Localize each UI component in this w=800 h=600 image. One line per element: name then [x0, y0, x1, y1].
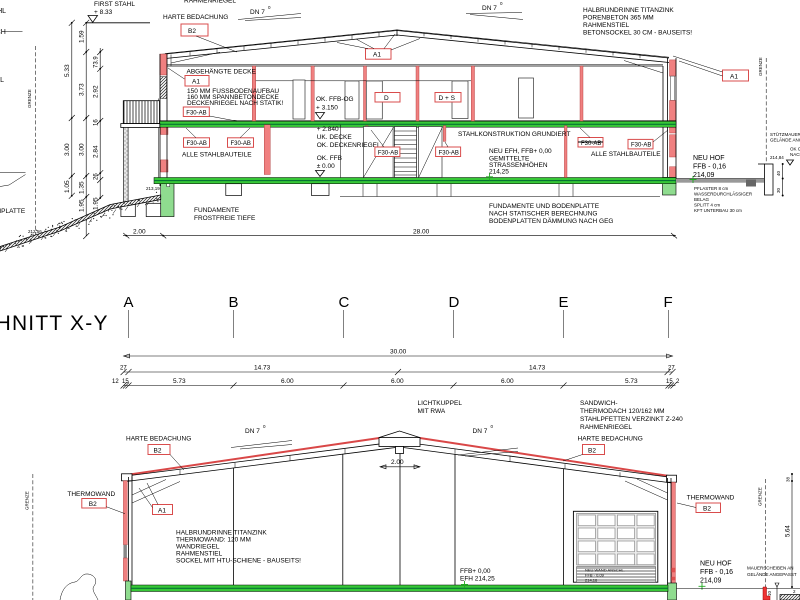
- svg-text:OK. FFB: OK. FFB: [317, 155, 342, 162]
- svg-text:DN 7: DN 7: [482, 5, 497, 12]
- svg-text:RAHMENRIEGEL: RAHMENRIEGEL: [184, 0, 236, 5]
- svg-text:B: B: [229, 294, 239, 311]
- svg-text:213,19: 213,19: [146, 186, 160, 191]
- svg-text:BODENPLATTE: BODENPLATTE: [0, 208, 26, 215]
- svg-text:HARTE BEDACHUNG: HARTE BEDACHUNG: [578, 436, 643, 443]
- svg-text:D + S: D + S: [439, 95, 456, 102]
- svg-text:HARTE BEDACHUNG: HARTE BEDACHUNG: [126, 436, 191, 443]
- svg-text:KFT UNTERBAU 30 cm: KFT UNTERBAU 30 cm: [694, 208, 742, 213]
- svg-text:GRENZE: GRENZE: [25, 491, 30, 510]
- svg-text:NACH STATISCHER BERECHNUNG: NACH STATISCHER BERECHNUNG: [489, 211, 597, 218]
- svg-text:NACH: NACH: [790, 152, 800, 157]
- svg-text:+ 3.150: + 3.150: [316, 105, 338, 112]
- svg-text:C: C: [339, 294, 350, 311]
- svg-text:5.33: 5.33: [64, 64, 71, 77]
- svg-text:3.00: 3.00: [64, 143, 71, 156]
- svg-text:27: 27: [668, 366, 675, 372]
- svg-text:30.00: 30.00: [390, 349, 407, 356]
- svg-text:5.73: 5.73: [173, 378, 186, 385]
- svg-text:THERMOWAND: 120 MM: THERMOWAND: 120 MM: [176, 537, 251, 544]
- svg-text:GELÄNDE ANGEPASST: GELÄNDE ANGEPASST: [747, 571, 797, 577]
- svg-text:6.00: 6.00: [281, 378, 294, 385]
- svg-text:A1: A1: [158, 507, 166, 514]
- svg-text:214,84: 214,84: [770, 155, 784, 160]
- svg-text:STAHL: STAHL: [0, 8, 6, 15]
- svg-text:A: A: [124, 294, 134, 311]
- svg-text:UK. DECKE: UK. DECKE: [317, 134, 353, 141]
- svg-text:RAHMENSTIEL: RAHMENSTIEL: [583, 22, 630, 29]
- svg-text:FFB - 0,16: FFB - 0,16: [700, 569, 733, 576]
- svg-text:MIT RWA: MIT RWA: [418, 408, 446, 415]
- svg-text:SOCKEL MIT HTU-SCHIENE - BAUSE: SOCKEL MIT HTU-SCHIENE - BAUSEITS!: [176, 558, 301, 565]
- svg-text:214,16: 214,16: [585, 578, 598, 583]
- svg-text:PFLASTER 8 cm: PFLASTER 8 cm: [694, 186, 729, 191]
- svg-text:WANDRIEGEL: WANDRIEGEL: [176, 544, 220, 551]
- svg-text:2.92: 2.92: [93, 85, 100, 98]
- svg-text:ABGEHÄNGTE DECKE: ABGEHÄNGTE DECKE: [187, 68, 257, 76]
- svg-text:OK GE: OK GE: [790, 147, 800, 152]
- svg-text:F30-AB: F30-AB: [378, 150, 398, 156]
- svg-text:F30-AB: F30-AB: [231, 141, 251, 147]
- svg-text:HARTE BEDACHUNG: HARTE BEDACHUNG: [163, 14, 228, 21]
- svg-text:FFB+ 0,00: FFB+ 0,00: [460, 568, 491, 575]
- svg-text:B2: B2: [188, 28, 196, 35]
- svg-text:DACH: DACH: [0, 29, 6, 36]
- svg-text:40: 40: [776, 170, 781, 176]
- svg-text:FIRST STAHL: FIRST STAHL: [94, 1, 135, 8]
- svg-text:38: 38: [786, 476, 791, 482]
- svg-text:NEU HOF: NEU HOF: [700, 561, 732, 568]
- svg-text:10: 10: [767, 590, 772, 596]
- svg-text:LICHTKUPPEL: LICHTKUPPEL: [418, 400, 463, 407]
- svg-text:DECKENRIEGEL NACH STATIK!: DECKENRIEGEL NACH STATIK!: [187, 100, 284, 107]
- svg-text:F: F: [664, 294, 673, 311]
- svg-text:30: 30: [776, 187, 781, 193]
- svg-text:5.73: 5.73: [625, 378, 638, 385]
- svg-text:3.00: 3.00: [79, 143, 86, 156]
- svg-text:26: 26: [94, 173, 100, 180]
- svg-text:A1: A1: [373, 52, 381, 59]
- svg-text:HALBRUNDRINNE TITANZINK: HALBRUNDRINNE TITANZINK: [176, 530, 267, 537]
- svg-text:DN 7: DN 7: [245, 428, 260, 435]
- svg-text:FUNDAMENTE: FUNDAMENTE: [194, 207, 240, 214]
- svg-text:2.00: 2.00: [391, 459, 404, 466]
- svg-text:RAHMENRIEGEL: RAHMENRIEGEL: [580, 424, 632, 431]
- svg-text:1.05: 1.05: [64, 180, 71, 193]
- svg-text:GRENZE: GRENZE: [27, 89, 32, 108]
- svg-text:2.00: 2.00: [133, 229, 146, 236]
- svg-text:SCHNITT X-Y: SCHNITT X-Y: [0, 312, 109, 335]
- svg-text:F30-AB: F30-AB: [186, 110, 206, 116]
- svg-text:SANDWICH-: SANDWICH-: [580, 400, 618, 407]
- svg-text:GRENZE: GRENZE: [758, 57, 763, 76]
- svg-text:BELAG: BELAG: [694, 197, 710, 202]
- svg-text:THERMOWAND: THERMOWAND: [67, 491, 115, 498]
- svg-text:15: 15: [666, 379, 673, 385]
- svg-text:F30-AB: F30-AB: [187, 141, 207, 147]
- svg-text:16: 16: [94, 119, 100, 126]
- svg-text:OK. FFB-OG: OK. FFB-OG: [316, 96, 354, 103]
- svg-text:FFB - 0,16: FFB - 0,16: [693, 164, 726, 171]
- svg-text:NEU EFH, FFB+ 0,00: NEU EFH, FFB+ 0,00: [489, 148, 552, 155]
- svg-text:214,25: 214,25: [489, 169, 509, 176]
- svg-text:GRENZE: GRENZE: [758, 487, 763, 506]
- svg-text:1.59: 1.59: [79, 30, 86, 43]
- svg-text:B2: B2: [703, 506, 711, 513]
- svg-text:3.73: 3.73: [79, 83, 86, 96]
- svg-text:A1: A1: [730, 74, 738, 81]
- svg-text:+ 2.840: + 2.840: [317, 126, 339, 133]
- svg-text:73.9: 73.9: [94, 56, 100, 68]
- svg-text:12: 12: [112, 379, 119, 385]
- svg-text:GELÄNDE ANGEP: GELÄNDE ANGEP: [770, 137, 800, 143]
- svg-text:6.00: 6.00: [391, 378, 404, 385]
- svg-text:14.73: 14.73: [254, 365, 271, 372]
- svg-text:THERMOWAND: THERMOWAND: [687, 495, 735, 502]
- svg-text:ALLE STAHLBAUTEILE: ALLE STAHLBAUTEILE: [182, 152, 252, 159]
- svg-text:2.84: 2.84: [93, 145, 100, 158]
- svg-text:WASSERDURCHLÄSSIGER: WASSERDURCHLÄSSIGER: [694, 191, 753, 197]
- svg-text:212,56: 212,56: [28, 229, 42, 234]
- svg-text:5.64: 5.64: [786, 525, 792, 537]
- svg-text:FROSTFREIE TIEFE: FROSTFREIE TIEFE: [194, 215, 256, 222]
- svg-text:STAHLPFETTEN VERZINKT Z-240: STAHLPFETTEN VERZINKT Z-240: [580, 416, 683, 423]
- svg-text:D: D: [384, 95, 389, 102]
- svg-text:1.95: 1.95: [93, 197, 100, 210]
- svg-text:BODENPLATTEN DÄMMUNG NACH GEG: BODENPLATTEN DÄMMUNG NACH GEG: [489, 217, 613, 225]
- svg-text:+ 8.33: + 8.33: [94, 9, 113, 16]
- svg-text:BETONSOCKEL 30 CM - BAUSEITS!: BETONSOCKEL 30 CM - BAUSEITS!: [583, 30, 692, 37]
- svg-text:RAHMENSTIEL: RAHMENSTIEL: [176, 551, 223, 558]
- svg-text:27: 27: [120, 366, 127, 372]
- svg-text:PORENBETON 365 MM: PORENBETON 365 MM: [583, 15, 654, 22]
- svg-text:HALBRUNDRINNE TITANZINK: HALBRUNDRINNE TITANZINK: [583, 7, 674, 14]
- svg-text:14.73: 14.73: [529, 365, 546, 372]
- svg-text:D: D: [449, 294, 460, 311]
- svg-text:1.95: 1.95: [79, 199, 86, 212]
- svg-text:DN 7: DN 7: [473, 428, 488, 435]
- svg-text:STÜTZMAUER BE: STÜTZMAUER BE: [770, 131, 800, 137]
- svg-text:B2: B2: [89, 501, 97, 508]
- svg-text:THERMODACH 120/162 MM: THERMODACH 120/162 MM: [580, 408, 665, 415]
- svg-text:EFH 214,25: EFH 214,25: [460, 576, 495, 583]
- svg-text:NEU HOF: NEU HOF: [693, 155, 725, 162]
- svg-text:STAHLKONSTRUKTION GRUNDIERT: STAHLKONSTRUKTION GRUNDIERT: [458, 131, 570, 138]
- svg-text:28.00: 28.00: [413, 229, 430, 236]
- svg-text:A1: A1: [192, 79, 200, 86]
- svg-text:± 0.00: ± 0.00: [317, 163, 335, 170]
- svg-text:FUNDAMENTE UND BODENPLATTE: FUNDAMENTE UND BODENPLATTE: [489, 203, 600, 210]
- svg-text:214,09: 214,09: [693, 172, 715, 179]
- svg-text:6.00: 6.00: [501, 378, 514, 385]
- svg-text:STAHL: STAHL: [0, 77, 4, 84]
- svg-text:B2: B2: [154, 447, 162, 454]
- svg-text:F30-AB: F30-AB: [631, 143, 651, 149]
- svg-text:B2: B2: [588, 447, 596, 454]
- svg-text:SPLITT 4 cm: SPLITT 4 cm: [694, 203, 720, 208]
- svg-text:E: E: [559, 294, 569, 311]
- svg-text:214,09: 214,09: [700, 578, 722, 585]
- svg-text:OK. DECKENRIEGEL: OK. DECKENRIEGEL: [317, 142, 381, 149]
- svg-text:MAUERSCHEIBEN AN: MAUERSCHEIBEN AN: [747, 566, 794, 571]
- svg-text:15: 15: [122, 379, 129, 385]
- svg-text:1.35: 1.35: [79, 181, 86, 194]
- svg-text:DN 7: DN 7: [250, 9, 265, 16]
- svg-text:F30-AB: F30-AB: [439, 150, 459, 156]
- svg-text:ALLE STAHLBAUTEILE: ALLE STAHLBAUTEILE: [591, 151, 661, 158]
